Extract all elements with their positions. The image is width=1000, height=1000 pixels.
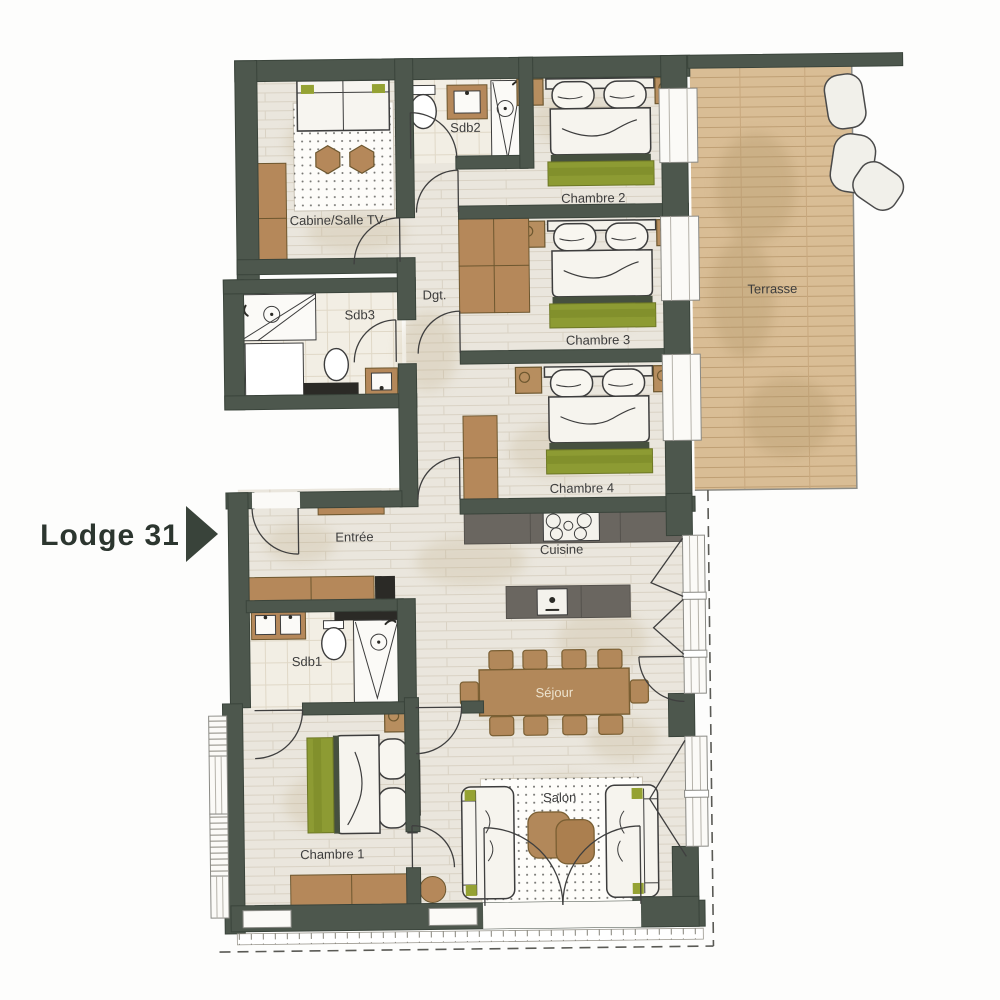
label-salon: Salon [543, 790, 576, 805]
wall-sdb1-right [397, 599, 416, 706]
label-cabine: Cabine/Salle TV [290, 212, 384, 228]
green-cushion [301, 85, 314, 94]
cabinet [245, 343, 304, 396]
pillow [378, 739, 407, 779]
floor-plan: Cabine/Salle TV Sdb2 Chambre 2 Dgt. Sdb3… [201, 53, 919, 953]
round-pouf [420, 876, 446, 902]
shower [353, 620, 400, 703]
wall-sdb3-top [223, 278, 415, 294]
label-dgt: Dgt. [422, 287, 446, 302]
arrow-icon [186, 506, 218, 562]
label-terrasse: Terrasse [747, 281, 797, 297]
label-chambre1: Chambre 1 [300, 846, 364, 862]
label-chambre2: Chambre 2 [561, 190, 625, 206]
wall-right-pier1 [666, 493, 693, 535]
green-cushion [372, 84, 385, 93]
toilet [322, 628, 346, 660]
label-sdb2: Sdb2 [450, 120, 481, 135]
label-sdb3: Sdb3 [344, 307, 375, 322]
sofa-left [462, 786, 515, 899]
label-entree: Entrée [335, 529, 373, 544]
wall-top-terrace [688, 53, 903, 69]
wall-chambre1-right [404, 698, 420, 832]
kitchen-island [506, 585, 630, 619]
bedroom-windows [659, 88, 701, 440]
floor-plan-canvas: Cabine/Salle TV Sdb2 Chambre 2 Dgt. Sdb3… [0, 0, 1000, 1000]
label-sdb1: Sdb1 [292, 654, 323, 669]
entrance-opening [252, 492, 300, 509]
wall-cabine-bottom [237, 258, 399, 275]
pillow [379, 788, 408, 828]
wall-entree-top [298, 491, 402, 508]
living-glass-doors [681, 535, 709, 846]
wall-chambre4-bottom [460, 496, 695, 514]
wall-sdb1-top [246, 599, 403, 613]
wall-sdb3-bottom [225, 394, 417, 410]
wall-sdb2-right [519, 57, 534, 168]
label-chambre3: Chambre 3 [566, 332, 630, 348]
wall-chambre1-top [302, 702, 404, 715]
label-cuisine: Cuisine [540, 542, 584, 558]
wall-left-upper [235, 61, 260, 289]
floor-plan-page: Cabine/Salle TV Sdb2 Chambre 2 Dgt. Sdb3… [0, 0, 1000, 1000]
toilet-tank [411, 85, 435, 94]
coffee-table [556, 819, 595, 863]
wall-mid-vertical [395, 59, 415, 218]
duvet [335, 735, 380, 834]
toilet [410, 94, 436, 128]
label-chambre4: Chambre 4 [550, 480, 614, 496]
toilet [324, 348, 348, 380]
plan-title: Lodge 31 [40, 519, 180, 552]
label-sejour: Séjour [535, 685, 573, 700]
plan-title-group: Lodge 31 [40, 506, 218, 562]
wall-sdb2-bottom [456, 155, 528, 169]
wall-chambre3-bottom [460, 348, 690, 364]
left-windows [209, 716, 229, 918]
